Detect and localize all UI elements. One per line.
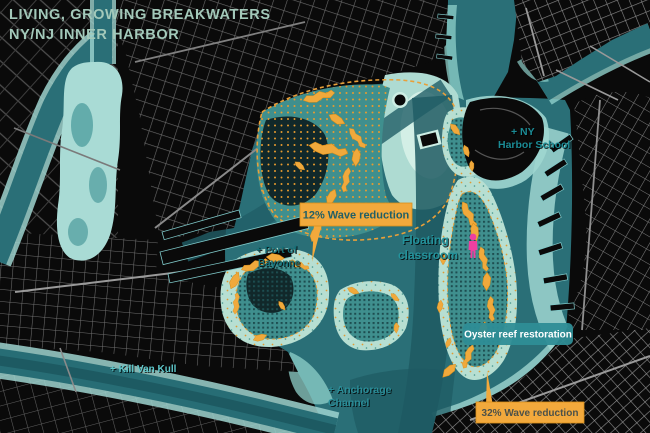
kill-van-kull-label: + Kill Van Kull xyxy=(110,364,177,375)
floating-classroom-label-line2: classroom xyxy=(398,248,458,262)
wave-reduction-12-label: 12% Wave reduction xyxy=(303,210,410,222)
ny-harbor-school-label-line2: Harbor School xyxy=(498,139,570,151)
ny-harbor-school-label-line1: + NY xyxy=(511,126,535,138)
callout-oyster-reef: Oyster reef restoration xyxy=(463,323,573,345)
anchorage-channel-label-line2: Channel xyxy=(328,397,370,409)
oyster-reef-label: Oyster reef restoration xyxy=(464,330,572,341)
anchorage-channel-label-line1: + Anchorage xyxy=(328,384,392,396)
port-of-bayonne-label-line2: Bayonne xyxy=(258,258,301,269)
title-line2: NY/NJ INNER HARBOR xyxy=(9,27,179,43)
title-line1: LIVING, GROWING BREAKWATERS xyxy=(9,7,271,23)
harbor-map-canvas: 12% Wave reduction 32% Wave reduction Oy… xyxy=(0,0,650,433)
liberty-island xyxy=(392,92,408,108)
port-of-bayonne-label-line1: + Port of xyxy=(256,245,298,256)
wave-reduction-32-label: 32% Wave reduction xyxy=(482,408,579,419)
floating-classroom-label-line1: Floating xyxy=(402,233,449,247)
breakwaters-map: 12% Wave reduction 32% Wave reduction Oy… xyxy=(0,0,650,433)
